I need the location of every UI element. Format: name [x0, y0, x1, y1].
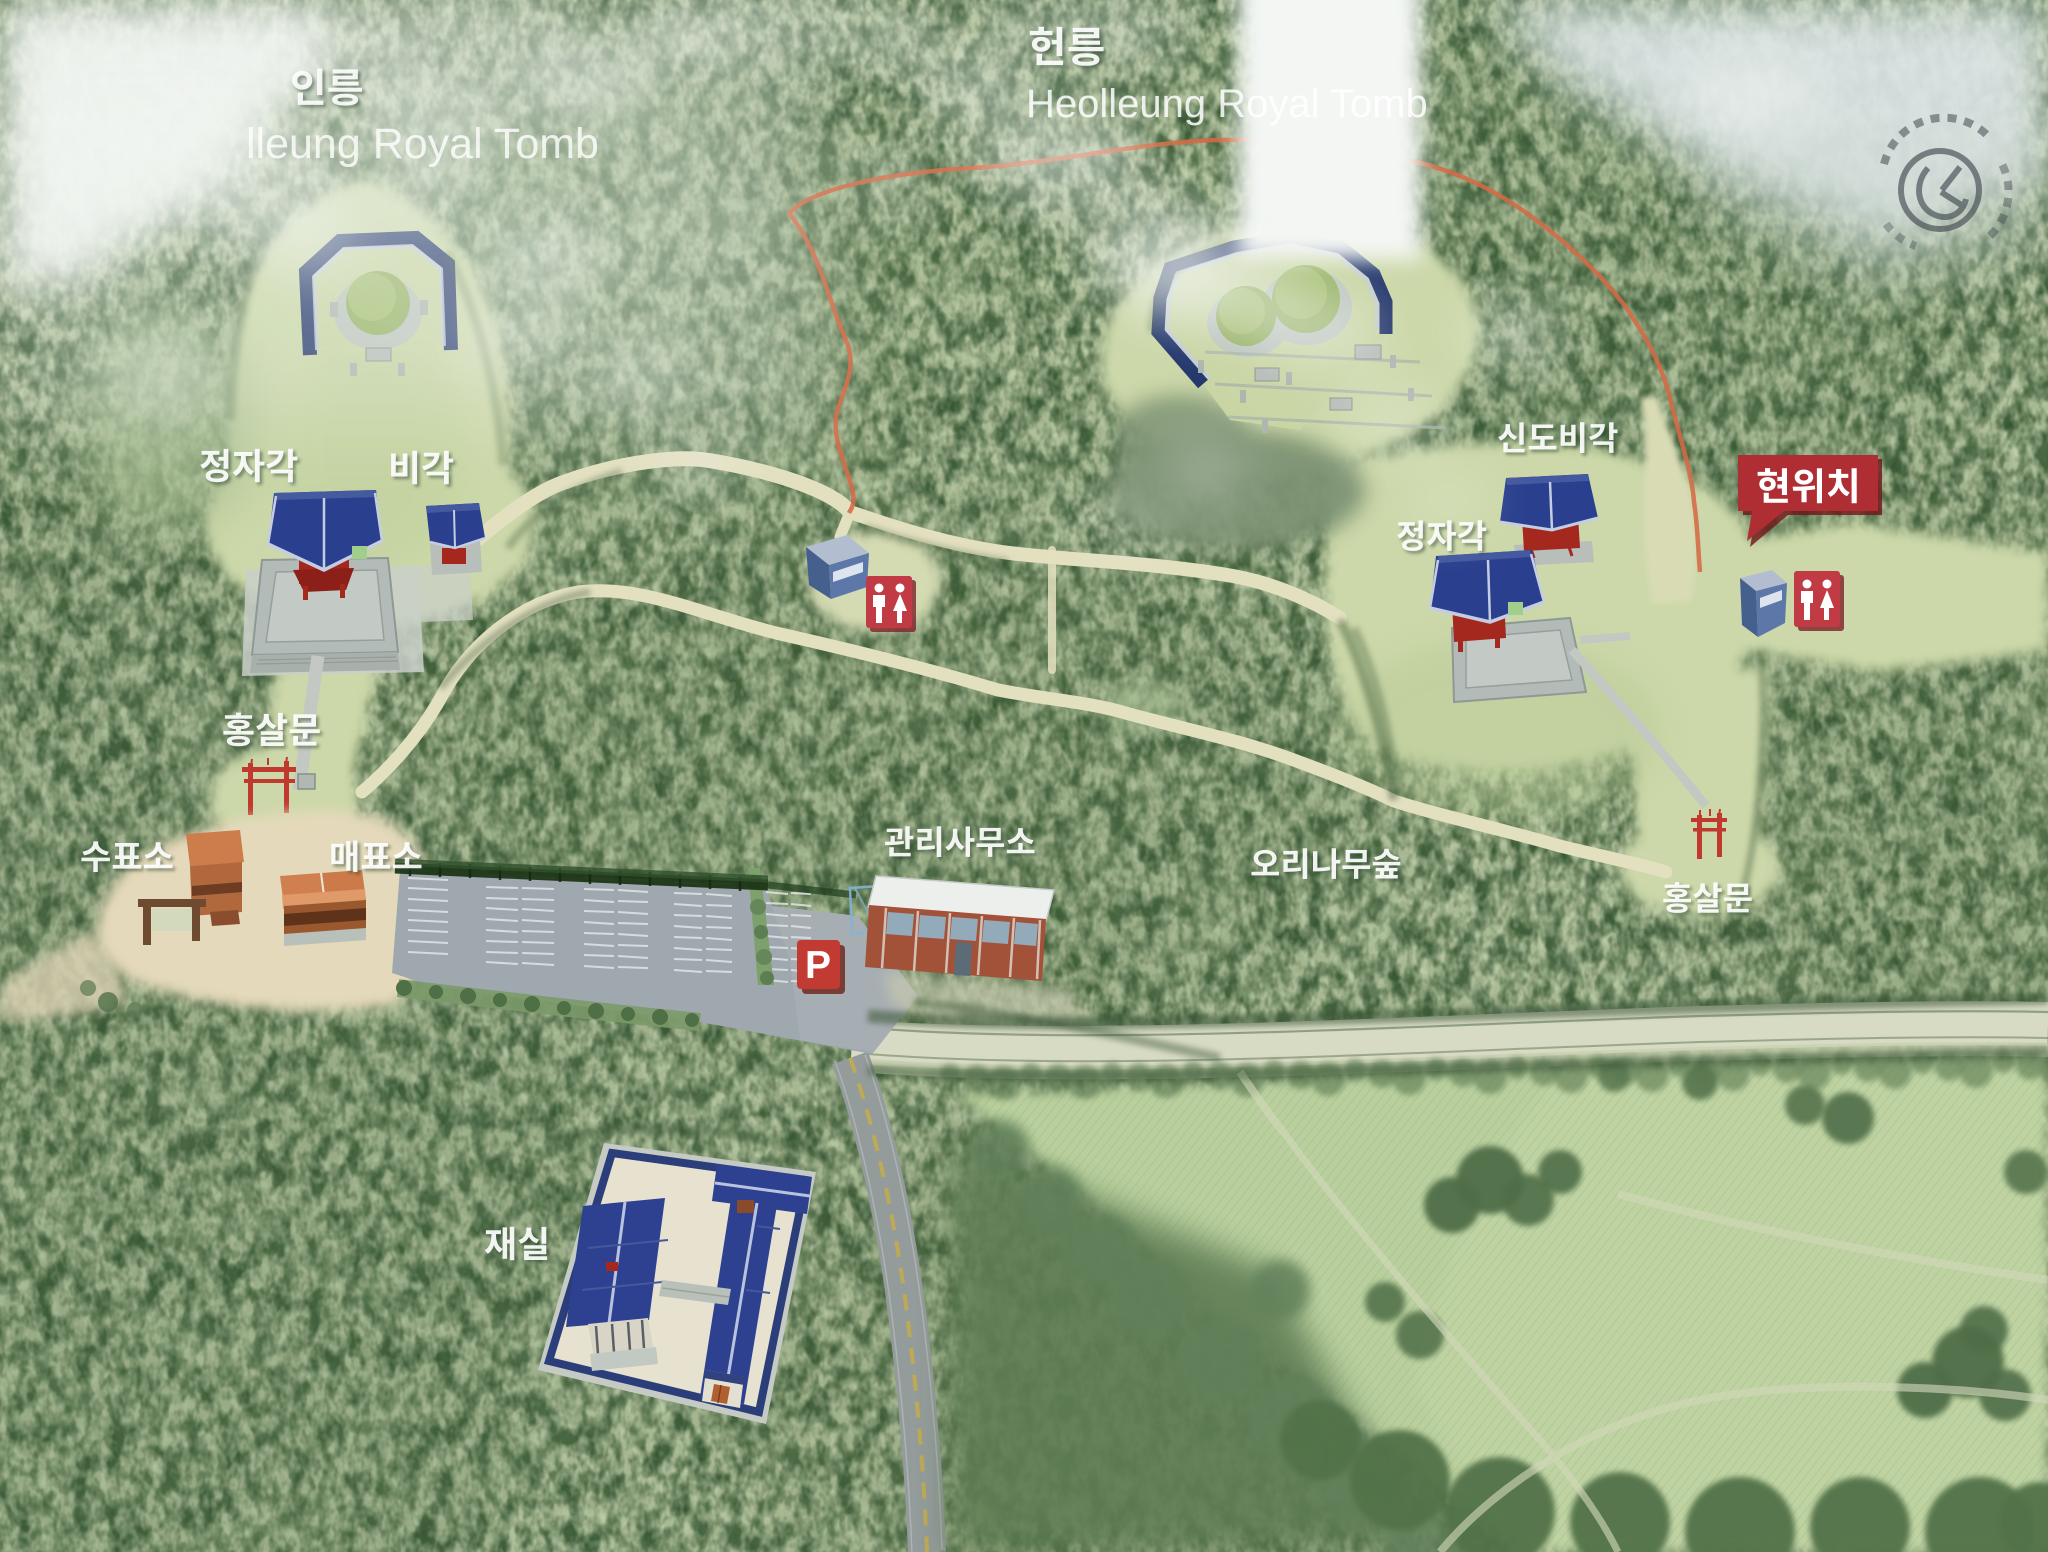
svg-text:lleung Royal Tomb: lleung Royal Tomb [246, 120, 599, 168]
svg-text:Heolleung Royal Tomb: Heolleung Royal Tomb [1026, 82, 1428, 126]
svg-text:P: P [805, 944, 831, 987]
